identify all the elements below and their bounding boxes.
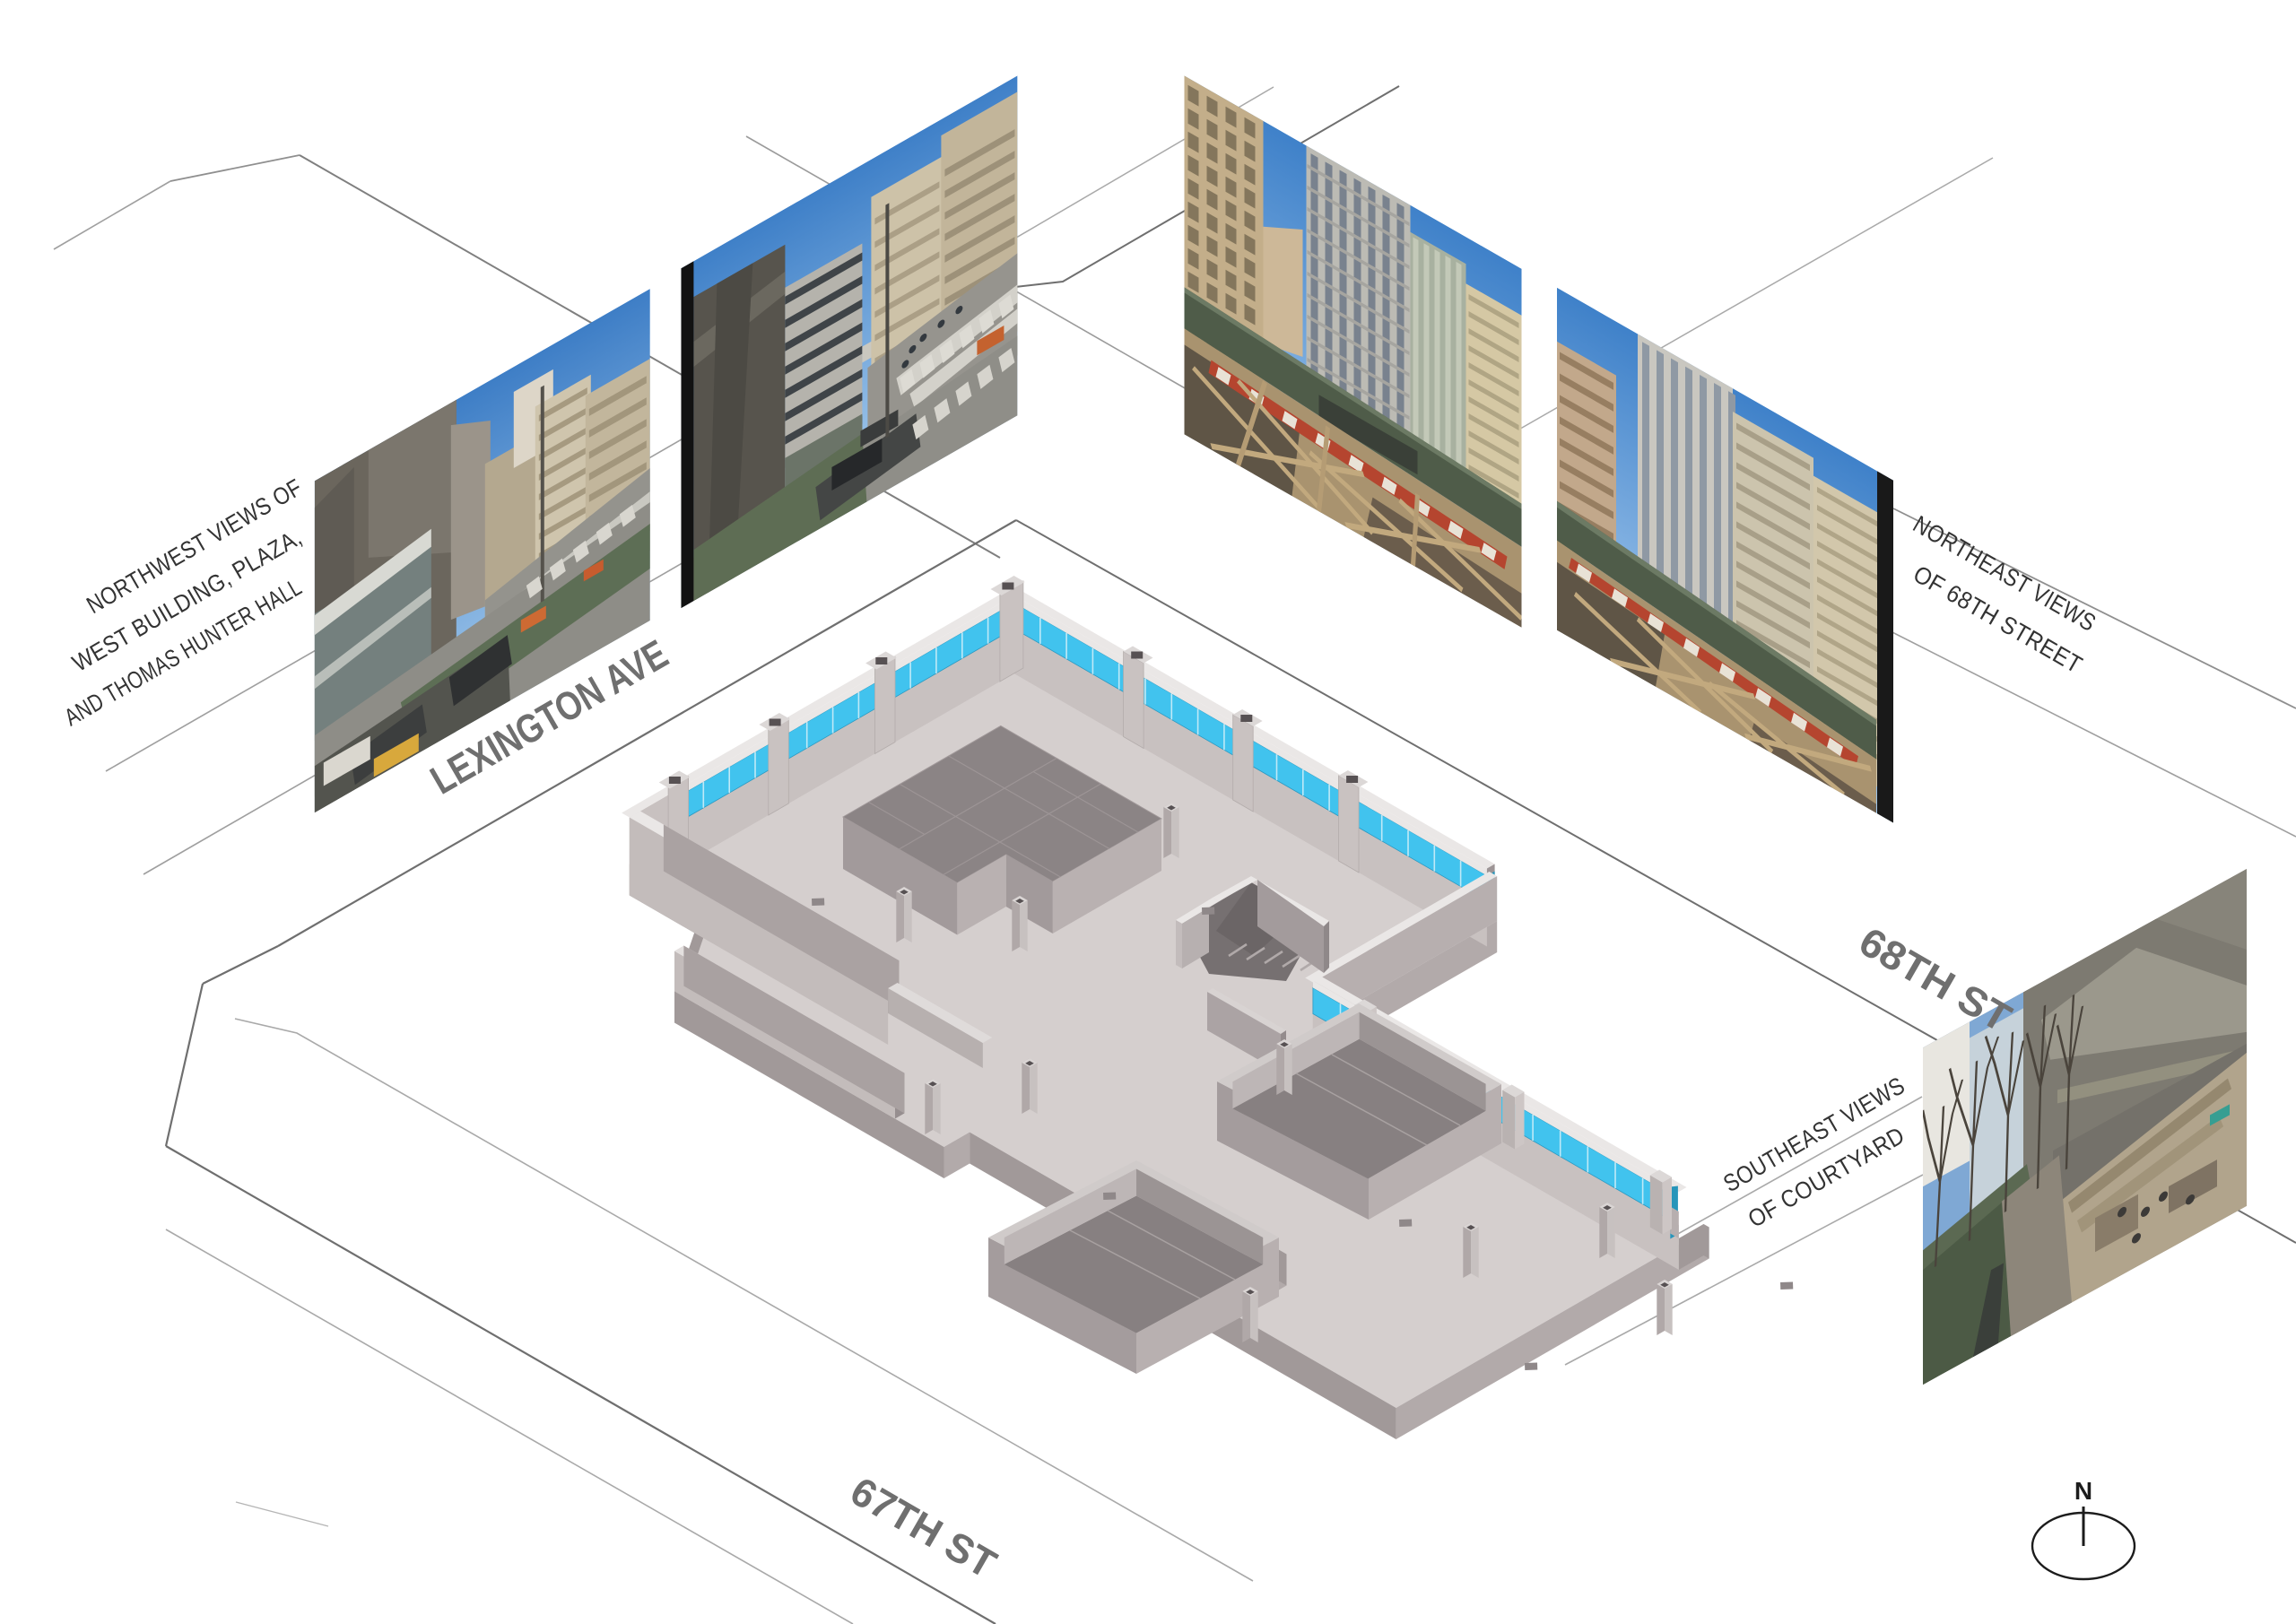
svg-text:N: N — [2074, 1477, 2092, 1505]
